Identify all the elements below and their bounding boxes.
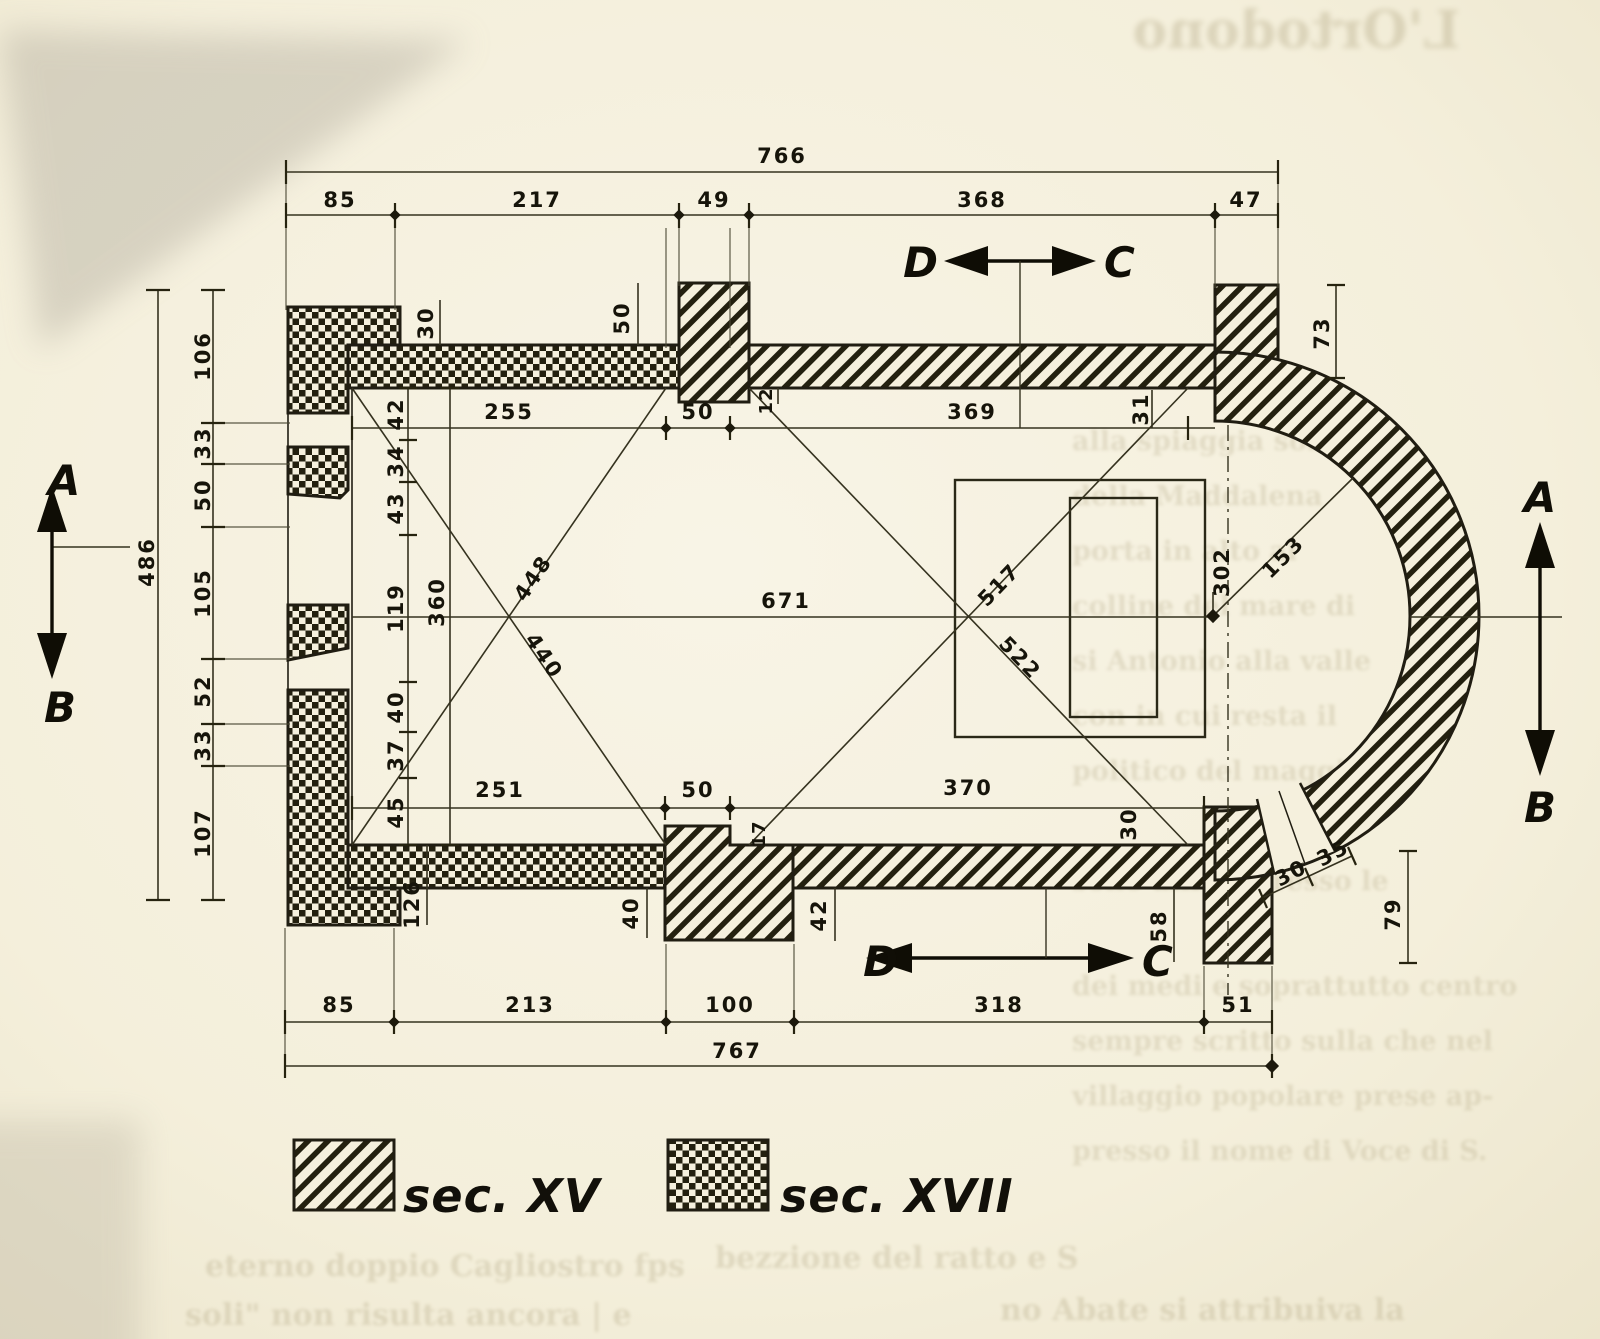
dim-top-5: 47 <box>1229 188 1262 212</box>
dim-chain-5: 40 <box>384 690 408 723</box>
bleed-through-text-line: della Maddalena <box>1072 481 1323 512</box>
dim-apse-pilaster: 73 <box>1310 316 1334 349</box>
dim-left-1: 106 <box>191 331 215 381</box>
dim-step-bottom: 17 <box>749 820 770 847</box>
section-letter-a-right: A <box>1521 473 1557 522</box>
dim-left-2: 33 <box>191 426 215 459</box>
bleed-through-text-line: dei medi e soprattutto centro <box>1072 971 1517 1002</box>
bleed-through-text-line: si Antonio alla valle <box>1072 646 1371 677</box>
dim-pier-bottom: 30 <box>1117 807 1141 840</box>
dim-apse-outer: 79 <box>1381 897 1405 930</box>
dim-top-1: 85 <box>323 188 356 212</box>
dim-protrusion-42: 42 <box>807 898 831 931</box>
north-pilaster-sec-xv <box>679 283 749 402</box>
bleed-through-heading: L'Ortodono <box>1133 0 1460 61</box>
section-letter-a-left: A <box>45 456 81 505</box>
bleed-through-text-line: villaggio popolare prese ap- <box>1071 1081 1493 1112</box>
section-letter-d-top: D <box>903 238 938 287</box>
legend-swatch-sec-xvii <box>668 1140 768 1210</box>
dim-chain-3: 43 <box>384 491 408 524</box>
scanned-book-page: L'Ortodono alla spiaggia son della Madda… <box>0 0 1600 1339</box>
section-letter-c-top: C <box>1104 238 1135 287</box>
dim-step-top: 12 <box>756 387 777 414</box>
legend-label-sec-xv: sec. XV <box>403 1169 603 1223</box>
dim-nave-top-2: 50 <box>681 400 714 424</box>
dim-chain-2: 34 <box>384 444 408 477</box>
bleed-through-text-line: presso il nome di Voce di S. <box>1072 1136 1487 1167</box>
dim-nave-width: 360 <box>425 577 449 627</box>
dim-bottom-4: 318 <box>974 993 1024 1017</box>
dim-bottom-5: 51 <box>1221 993 1254 1017</box>
dim-chain-7: 45 <box>384 795 408 828</box>
north-wall-sec-xvii <box>348 345 679 388</box>
dim-nave-bottom-1: 251 <box>475 778 525 802</box>
dim-protrusion-40: 40 <box>619 896 643 929</box>
dim-nave-bottom-3: 370 <box>943 776 993 800</box>
dim-bottom-3: 100 <box>705 993 755 1017</box>
bleed-through-text-line: sempre scritto sulla che nel <box>1072 1026 1493 1057</box>
section-letter-c-bottom: C <box>1142 937 1173 986</box>
bleed-through-text-line: bezzione del ratto e S <box>715 1241 1078 1276</box>
dim-left-6: 33 <box>191 728 215 761</box>
dim-top-total: 766 <box>757 144 807 168</box>
legend-swatch-sec-xv <box>294 1140 394 1210</box>
dim-protrusion-126: 126 <box>400 879 424 929</box>
dim-apse-gap-top: 31 <box>1129 392 1153 425</box>
dim-bottom-2: 213 <box>505 993 555 1017</box>
west-pilaster-upper-sec-xvii <box>288 447 348 498</box>
south-wall-sec-xvii <box>348 845 665 888</box>
dim-left-5: 52 <box>191 674 215 707</box>
dim-top-4: 368 <box>957 188 1007 212</box>
dim-chain-4: 119 <box>384 583 408 633</box>
dim-left-7: 107 <box>191 808 215 858</box>
dim-pilaster-top: 50 <box>610 301 634 334</box>
dim-left-3: 50 <box>191 478 215 511</box>
dim-apse-width: 302 <box>1210 547 1234 597</box>
bleed-through-text-line: eterno doppio Cagliostro fps <box>205 1249 685 1284</box>
bleed-through-text-line: soli" non risulta ancora | e <box>185 1298 632 1333</box>
dim-nave-bottom-2: 50 <box>681 778 714 802</box>
scan-shadow-bottom-left <box>0 1120 140 1339</box>
dim-nave-top-1: 255 <box>484 400 534 424</box>
dim-nave-top-3: 369 <box>947 400 997 424</box>
north-wall-sec-xv <box>679 345 1215 388</box>
dim-nave-length: 671 <box>761 589 811 613</box>
bleed-through-text-line: no Abate si attribuiva la <box>1000 1293 1405 1328</box>
dim-buttress-top: 30 <box>414 306 438 339</box>
section-letter-d-bottom: D <box>863 937 898 986</box>
dim-top-2: 217 <box>512 188 562 212</box>
dim-chain-1: 42 <box>384 397 408 430</box>
dim-bottom-total: 767 <box>712 1039 762 1063</box>
legend-label-sec-xvii: sec. XVII <box>780 1169 1014 1223</box>
dim-top-3: 49 <box>697 188 730 212</box>
section-letter-b-left: B <box>44 683 76 732</box>
church-floor-plan-figure: L'Ortodono alla spiaggia son della Madda… <box>0 0 1600 1339</box>
dim-left-total: 486 <box>135 537 159 587</box>
dim-left-4: 105 <box>191 568 215 618</box>
dim-chain-6: 37 <box>384 738 408 771</box>
section-letter-b-right: B <box>1524 783 1556 832</box>
dim-bottom-1: 85 <box>322 993 355 1017</box>
